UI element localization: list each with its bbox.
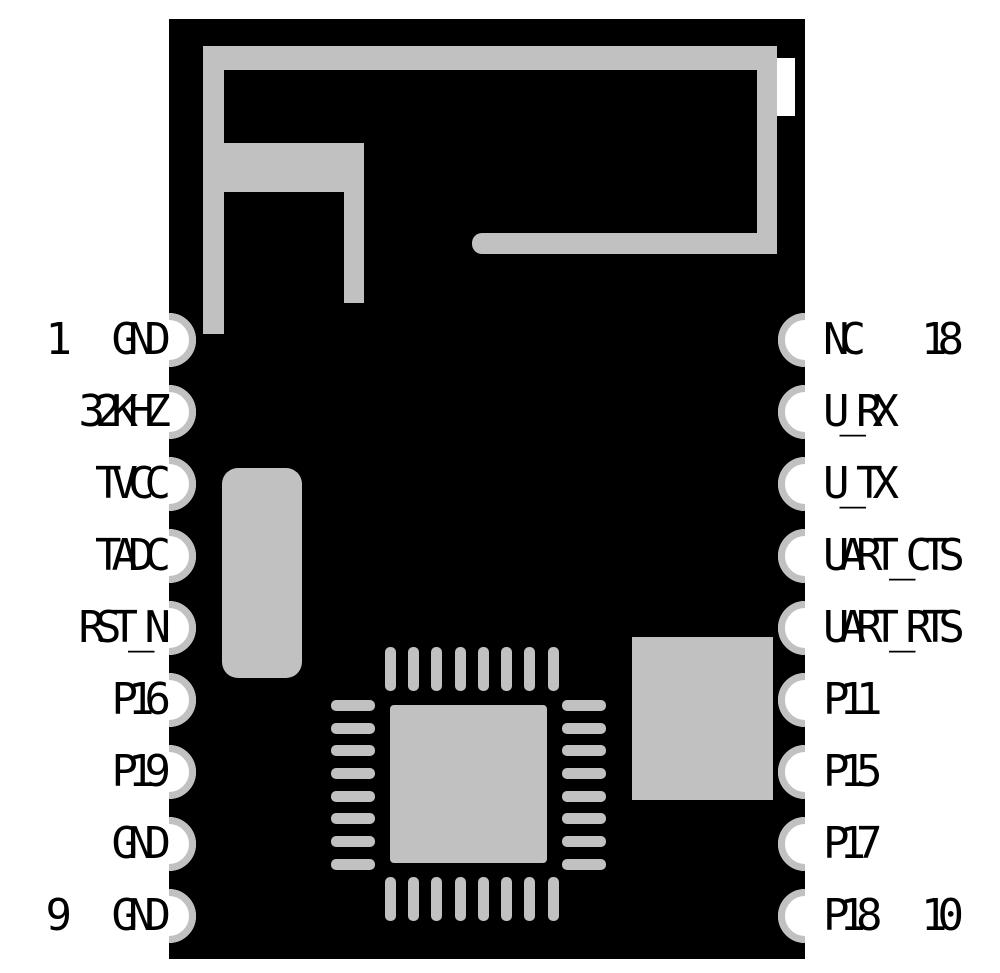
pin-number-10: 10 [921, 889, 954, 943]
pin-label-left-6: P16 [112, 673, 161, 727]
pin-label-right-12: P15 [823, 745, 872, 799]
pin-number-1: 1 [46, 313, 63, 367]
pin-number-9: 9 [46, 889, 63, 943]
pin-plating-rings [169, 317, 805, 940]
pin-label-left-9: GND [112, 889, 161, 943]
pin-number-18: 18 [921, 313, 954, 367]
pin-label-left-5: RST_N [79, 601, 161, 655]
pin-label-right-10: P18 [823, 889, 872, 943]
pin-label-right-17: U_RX [823, 385, 889, 439]
pin-label-right-15: UART_CTS [823, 529, 955, 583]
pin-label-right-18: NC [823, 313, 856, 367]
pin-label-left-1: GND [112, 313, 161, 367]
pinout-diagram: GND 32KHZ TVCC TADC RST_N P16 P19 GND GN… [0, 0, 1000, 973]
pin-notches [142, 313, 832, 943]
pin-label-right-16: U_TX [823, 457, 889, 511]
pin-label-right-14: UART_RTS [823, 601, 955, 655]
pin-label-left-8: GND [112, 817, 161, 871]
pin-label-right-11: P17 [823, 817, 872, 871]
pin-label-left-7: P19 [112, 745, 161, 799]
pin-label-left-4: TADC [95, 529, 161, 583]
pin-label-right-13: P11 [823, 673, 872, 727]
pin-label-left-2: 32KHZ [79, 385, 161, 439]
pin-label-left-3: TVCC [95, 457, 161, 511]
